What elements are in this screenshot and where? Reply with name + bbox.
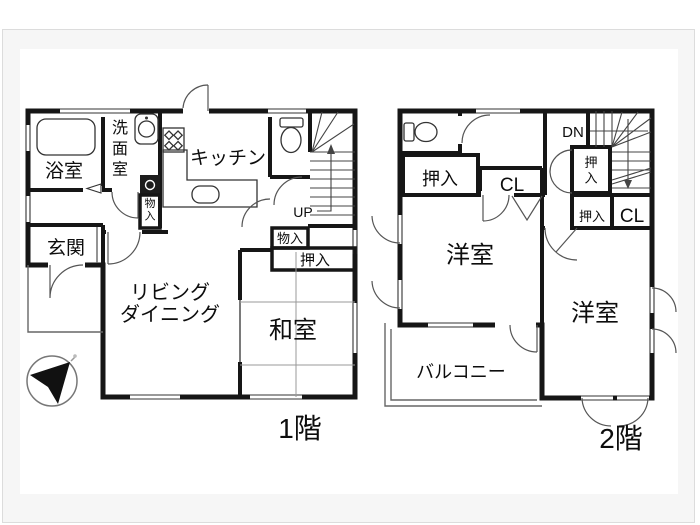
room-label-western-right: 洋室 bbox=[571, 300, 619, 327]
compass-icon bbox=[27, 354, 77, 406]
floor2-plan: 押入 CL 洋室 DN 押入 押入 CL 洋室 バルコニー 2階 bbox=[372, 106, 676, 454]
room-label-balcony: バルコニー bbox=[416, 362, 506, 382]
floor1-plan: 浴室 洗面室 キッチン 玄関 リビングダイニング 和室 物入 物入 押入 UP … bbox=[23, 85, 361, 444]
room-label-bathroom: 浴室 bbox=[45, 160, 83, 182]
toilet-icon-f2 bbox=[404, 123, 437, 142]
room-label-washroom: 洗面室 bbox=[112, 119, 128, 179]
floorplan-image: 浴室 洗面室 キッチン 玄関 リビングダイニング 和室 物入 物入 押入 UP … bbox=[0, 0, 700, 525]
label-oshiire-small: 押入 bbox=[579, 209, 605, 224]
floor2-label: 2階 bbox=[599, 423, 643, 454]
washer-icon bbox=[140, 175, 160, 195]
label-oshiire-tall: 押入 bbox=[584, 155, 597, 186]
room-label-living: リビングダイニング bbox=[120, 281, 220, 326]
label-hall-storage: 物入 bbox=[277, 231, 303, 246]
room-label-japanese-room: 和室 bbox=[269, 317, 317, 344]
toilet-icon-f1 bbox=[280, 118, 303, 153]
stairs-up bbox=[310, 112, 355, 215]
wall-openings-f2 bbox=[394, 106, 658, 403]
room-label-entrance: 玄関 bbox=[47, 237, 85, 259]
label-oshiire-left: 押入 bbox=[422, 169, 458, 189]
stairs-down bbox=[590, 111, 651, 189]
porch-outline bbox=[28, 265, 103, 332]
stove-icon bbox=[163, 128, 184, 152]
sink-icon bbox=[135, 114, 158, 144]
floorplan-drawing: 浴室 洗面室 キッチン 玄関 リビングダイニング 和室 物入 物入 押入 UP … bbox=[0, 0, 700, 525]
kitchen-sink-icon bbox=[192, 186, 219, 203]
label-stairs-up: UP bbox=[293, 204, 312, 220]
floor1-label: 1階 bbox=[278, 413, 322, 444]
label-oshiire-f1: 押入 bbox=[300, 252, 330, 269]
room-label-western-left: 洋室 bbox=[446, 242, 494, 269]
label-stairs-down: DN bbox=[562, 124, 584, 141]
bathtub-icon bbox=[37, 119, 95, 155]
room-label-kitchen: キッチン bbox=[190, 148, 266, 169]
label-closet-right: CL bbox=[620, 206, 644, 227]
label-closet-left: CL bbox=[500, 175, 524, 196]
label-washroom-storage: 物入 bbox=[145, 196, 156, 223]
